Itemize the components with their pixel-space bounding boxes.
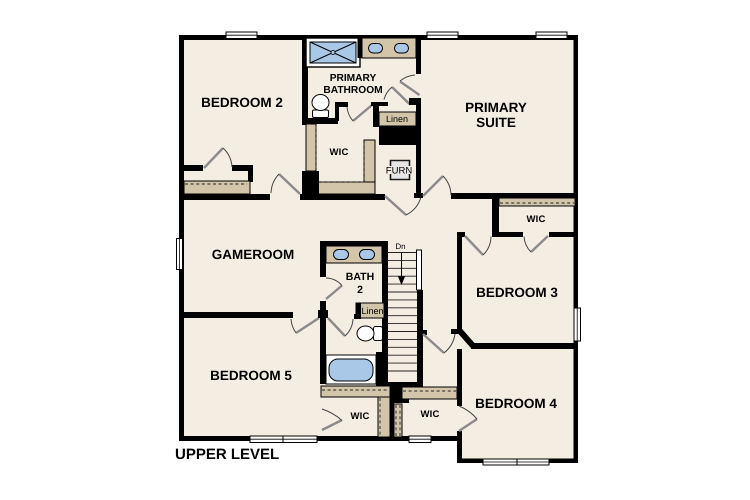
svg-text:Dn: Dn	[395, 242, 405, 251]
svg-text:WIC: WIC	[350, 411, 369, 422]
svg-text:BEDROOM 2: BEDROOM 2	[201, 95, 283, 110]
svg-text:BEDROOM 5: BEDROOM 5	[210, 368, 292, 383]
svg-text:PRIMARY: PRIMARY	[330, 73, 377, 84]
svg-text:GAMEROOM: GAMEROOM	[212, 247, 295, 262]
svg-text:PRIMARY: PRIMARY	[465, 100, 527, 115]
svg-text:FURN: FURN	[386, 166, 413, 177]
svg-text:WIC: WIC	[329, 147, 348, 158]
svg-text:BEDROOM 3: BEDROOM 3	[476, 285, 558, 300]
svg-text:SUITE: SUITE	[476, 115, 516, 130]
svg-text:WIC: WIC	[420, 409, 439, 420]
svg-text:BEDROOM 4: BEDROOM 4	[475, 396, 557, 411]
svg-text:UPPER LEVEL: UPPER LEVEL	[175, 446, 279, 463]
svg-text:Linen: Linen	[386, 114, 408, 124]
svg-text:WIC: WIC	[526, 214, 545, 225]
svg-text:BATH: BATH	[346, 271, 374, 283]
svg-text:BATHROOM: BATHROOM	[323, 85, 382, 96]
svg-text:Linen: Linen	[361, 306, 383, 316]
svg-text:2: 2	[357, 284, 363, 296]
